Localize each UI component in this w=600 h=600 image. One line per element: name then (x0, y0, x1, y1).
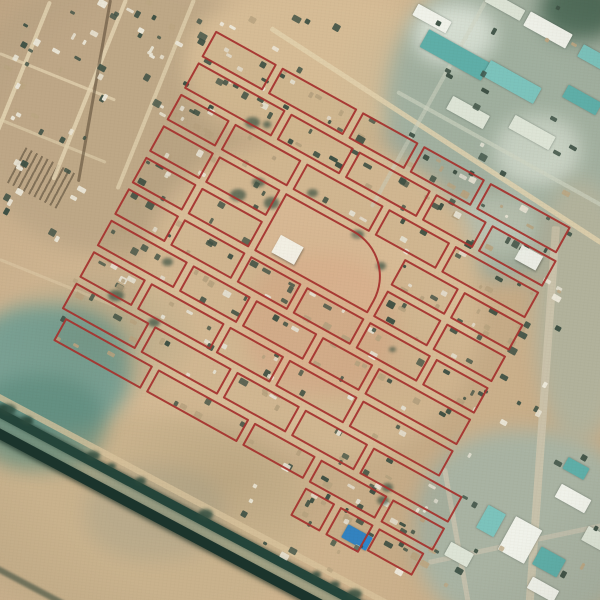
building (58, 67, 64, 74)
tree-clump (347, 589, 362, 600)
building (553, 460, 563, 468)
building (71, 33, 77, 40)
building (480, 87, 489, 95)
building (570, 42, 576, 47)
building (12, 55, 20, 63)
tree-clump (135, 477, 147, 485)
building (15, 188, 24, 196)
building (454, 566, 464, 576)
building (133, 10, 141, 18)
building (499, 170, 507, 177)
building (97, 0, 108, 9)
building (262, 541, 267, 546)
building (326, 567, 333, 573)
building (148, 45, 154, 52)
building (443, 582, 448, 587)
building (28, 49, 34, 54)
building (126, 7, 135, 14)
building (143, 73, 151, 82)
building (16, 112, 23, 118)
building (549, 115, 558, 122)
building (54, 236, 61, 243)
building (479, 142, 485, 148)
building (20, 41, 28, 49)
city-block-outline (290, 487, 335, 531)
building (472, 103, 482, 112)
building (74, 56, 82, 63)
tree-clump (86, 451, 100, 460)
building (544, 37, 549, 43)
building (580, 563, 586, 570)
building (498, 545, 505, 552)
building (593, 525, 599, 531)
building (480, 70, 487, 78)
building (157, 35, 162, 40)
building (159, 54, 164, 59)
building (552, 149, 561, 156)
building (473, 548, 478, 553)
building (70, 10, 75, 15)
building (2, 208, 10, 216)
building (83, 136, 88, 141)
building (38, 129, 44, 136)
tree-clump (312, 571, 322, 578)
building (291, 15, 302, 25)
building (446, 73, 454, 79)
building (63, 168, 71, 175)
building (556, 5, 562, 10)
building (24, 61, 29, 66)
tree-clump (20, 416, 31, 424)
building (23, 23, 29, 28)
building (271, 46, 279, 53)
tree-clump (330, 581, 340, 588)
building (248, 16, 257, 24)
building (174, 41, 183, 48)
building (59, 136, 66, 143)
building (70, 194, 78, 201)
building (219, 22, 224, 27)
building (149, 54, 156, 60)
building (435, 20, 442, 27)
tree-clump (198, 509, 214, 520)
building (89, 29, 98, 37)
building (559, 570, 567, 579)
building (4, 64, 13, 71)
building (197, 18, 204, 25)
building (569, 144, 578, 151)
building (97, 73, 104, 81)
building (478, 152, 488, 162)
building (229, 25, 236, 31)
building (97, 64, 107, 73)
building (304, 19, 310, 26)
building (10, 116, 15, 121)
building (145, 0, 152, 6)
building (151, 15, 157, 21)
building (68, 128, 75, 136)
building (30, 112, 39, 119)
aerial-photo (0, 0, 600, 600)
building (289, 547, 299, 556)
building (52, 47, 61, 55)
building (33, 38, 42, 47)
building (82, 39, 87, 45)
building (562, 189, 572, 197)
tree-clump (0, 404, 16, 415)
building (491, 27, 498, 35)
tree-clump (107, 463, 116, 469)
building (580, 453, 588, 461)
building (168, 23, 176, 31)
building (332, 23, 341, 32)
building (279, 551, 290, 560)
building (76, 185, 86, 194)
